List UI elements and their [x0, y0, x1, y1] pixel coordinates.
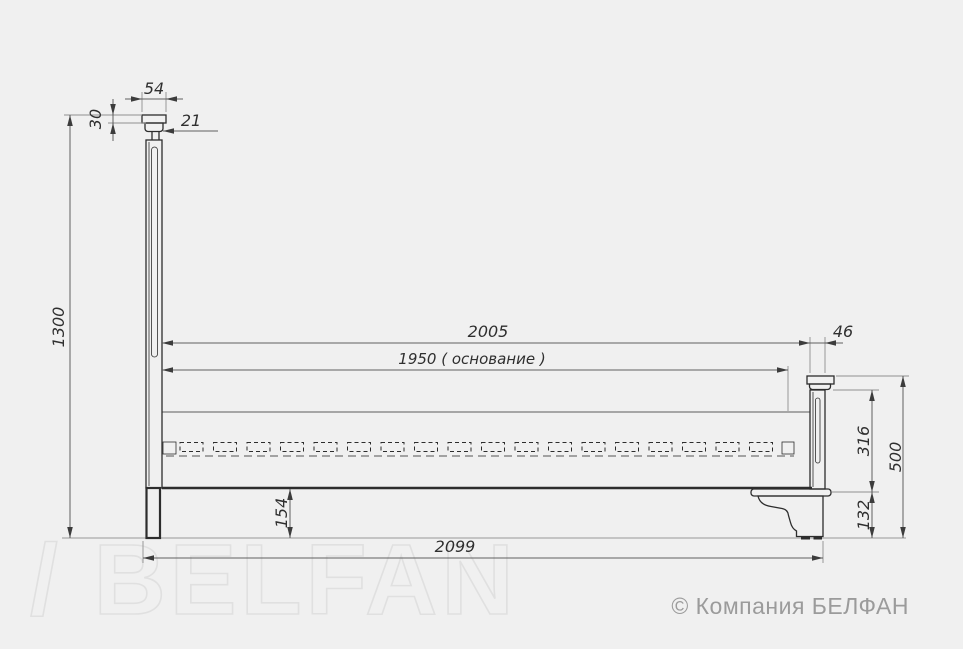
slat: [515, 443, 538, 452]
label-post-neck: 21: [181, 111, 201, 130]
dimension-arrowhead: [777, 367, 788, 373]
headboard-cap-step: [145, 123, 163, 132]
label-panel-height: 316: [854, 426, 873, 457]
dimension-arrowhead: [799, 340, 810, 346]
label-foot-height: 132: [854, 500, 873, 531]
slat: [482, 443, 505, 452]
label-base-length: 1950 ( основание ): [398, 350, 545, 368]
footboard-post-body: [810, 390, 825, 489]
slat: [180, 443, 203, 452]
dimension-arrowhead: [131, 96, 142, 102]
slat: [683, 443, 706, 452]
foot-pad-left: [801, 536, 810, 540]
slat: [616, 443, 639, 452]
headboard-cap-top: [142, 115, 166, 123]
dimension-arrowhead: [812, 555, 823, 561]
dimension-arrowhead: [900, 527, 906, 538]
label-cap-width: 54: [144, 79, 164, 98]
slat: [716, 443, 739, 452]
dimension-labels: 54 30 21 1300 2005 1950 ( основание ) 46…: [49, 79, 905, 556]
dimension-arrowhead: [900, 376, 906, 387]
slat: [549, 443, 572, 452]
rail-cleat-right: [782, 442, 794, 454]
slat: [247, 443, 270, 452]
footboard-bracket-foot: [758, 496, 823, 537]
headboard-post-body: [146, 140, 162, 488]
dimension-arrowhead: [110, 123, 116, 134]
dimension-arrowhead: [163, 128, 174, 134]
slat: [281, 443, 304, 452]
dimension-arrowhead: [166, 96, 177, 102]
side-rail: [162, 412, 812, 488]
headboard-post-groove: [152, 147, 158, 357]
dimension-arrowhead: [869, 390, 875, 401]
slat: [314, 443, 337, 452]
footboard-cap-step: [810, 384, 831, 390]
label-headboard-height: 1300: [49, 307, 68, 348]
footboard-cap-top: [807, 376, 834, 384]
foot-pad-right: [814, 536, 823, 540]
headboard-post: [142, 115, 166, 538]
slat: [381, 443, 404, 452]
dimension-arrowhead: [162, 340, 173, 346]
footboard-molding: [751, 489, 831, 496]
slat: [750, 443, 773, 452]
label-footboard-height: 500: [886, 442, 905, 473]
slat: [214, 443, 237, 452]
footboard-post-groove: [816, 398, 821, 463]
dimension-arrowhead: [67, 115, 73, 126]
label-rail-gap: 154: [272, 498, 291, 529]
footboard: [751, 376, 834, 540]
dimension-arrowhead: [825, 340, 836, 346]
slat: [348, 443, 371, 452]
label-inner-length: 2005: [468, 322, 509, 341]
slat: [649, 443, 672, 452]
copyright-text: © Компания БЕЛФАН: [671, 593, 909, 620]
slat: [448, 443, 471, 452]
dimension-arrowhead: [869, 481, 875, 492]
slat: [415, 443, 438, 452]
dimension-arrowhead: [162, 367, 173, 373]
slat: [582, 443, 605, 452]
headboard-cap-neck: [152, 132, 159, 141]
mattress-slats: [180, 443, 773, 452]
drawing-canvas: / BELFAN: [0, 0, 963, 649]
rail-cleat-left: [163, 442, 176, 454]
label-overall-length: 2099: [435, 537, 476, 556]
label-cap-top-height: 30: [86, 109, 105, 129]
dimension-arrowhead: [110, 104, 116, 115]
label-footboard-post-width: 46: [833, 322, 853, 341]
